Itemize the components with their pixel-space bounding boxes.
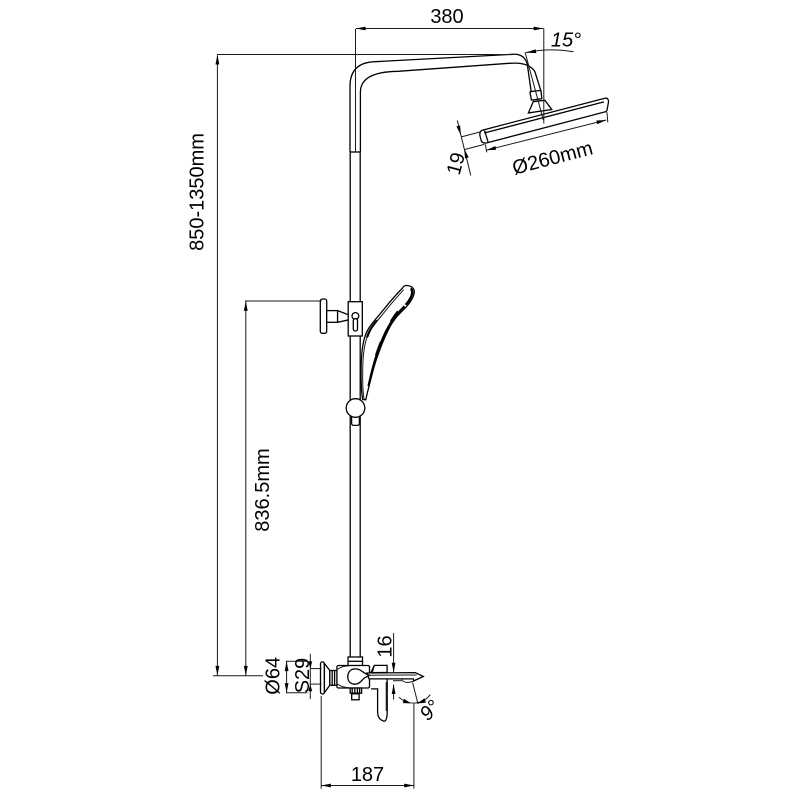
svg-text:187: 187 — [351, 764, 384, 786]
svg-text:380: 380 — [430, 6, 463, 28]
svg-text:16: 16 — [375, 635, 397, 657]
svg-text:Ø64: Ø64 — [263, 657, 285, 695]
svg-text:S29: S29 — [292, 658, 314, 694]
svg-text:850-1350mm: 850-1350mm — [187, 133, 209, 251]
svg-text:15°: 15° — [551, 30, 581, 52]
svg-text:836.5mm: 836.5mm — [252, 448, 274, 531]
